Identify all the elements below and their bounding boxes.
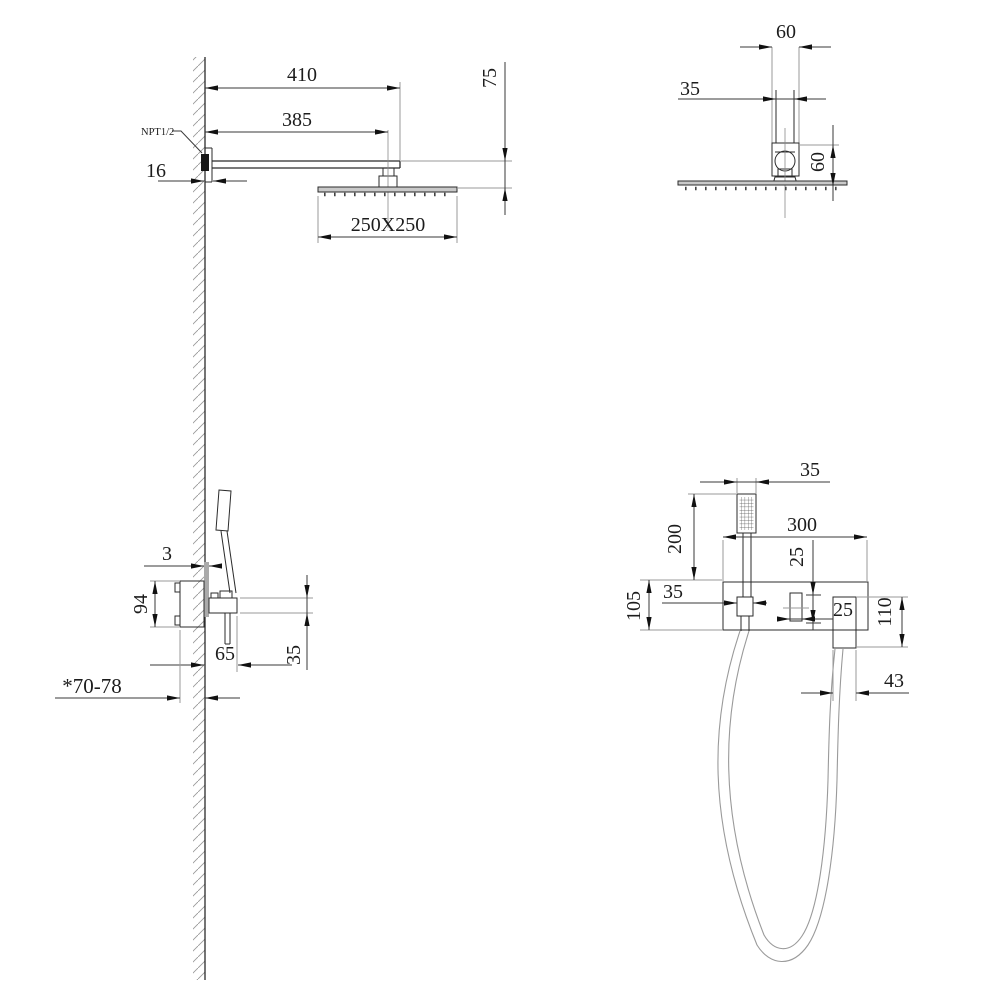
wall-section (193, 57, 209, 980)
npt-fitting (201, 154, 209, 171)
dim-handle-top-offset: 25 (786, 547, 808, 567)
dim-drop-height: 75 (479, 68, 501, 88)
dim-body-height: 94 (130, 594, 152, 614)
handshower-holder-front (737, 597, 753, 616)
dim-head-size: 250X250 (351, 214, 425, 236)
dim-outlet-width: 43 (884, 670, 904, 692)
mixer-handle-front (790, 593, 802, 621)
rain-head-plate-end (678, 181, 847, 185)
dim-arm-to-center: 385 (282, 109, 312, 131)
dim-handle-width: 25 (833, 599, 853, 621)
mixer-valve-front-view: 35 200 300 25 105 35 25 110 (623, 459, 909, 962)
mixer-valve-side-view: 3 94 65 35 *70-78 (55, 490, 313, 703)
dim-plate-width: 300 (787, 514, 817, 536)
dim-rough-in-depth: *70-78 (62, 674, 122, 698)
valve-wall-plate (204, 562, 209, 617)
valve-trim-side (209, 598, 237, 613)
dim-handshower-width: 35 (800, 459, 820, 481)
dim-bracket-height: 60 (807, 152, 829, 172)
dim-wall-offset: 16 (146, 160, 166, 182)
dim-trim-depth: 65 (215, 643, 235, 665)
handshower-head-side (216, 490, 231, 531)
rain-shower-end-view: 60 35 60 (678, 21, 847, 218)
dim-plate-thickness: 3 (162, 543, 172, 565)
head-connector (383, 168, 394, 176)
dim-plate-height: 105 (623, 591, 645, 621)
dim-bracket-width: 60 (776, 21, 796, 43)
rain-head-plate (318, 187, 457, 192)
dim-outlet-height: 110 (874, 597, 896, 626)
dim-arm-length: 410 (287, 64, 317, 86)
dim-holder-width: 35 (663, 581, 683, 603)
dim-arm-width: 35 (680, 78, 700, 100)
drawing-canvas: 410 385 75 NPT1/2 16 250X250 (0, 0, 1000, 1000)
dim-handshower-height: 200 (664, 524, 686, 554)
thread-label: NPT1/2 (141, 127, 174, 138)
wall-hatching (193, 57, 205, 980)
handshower-spray-face (740, 497, 754, 530)
shower-system-technical-drawing: 410 385 75 NPT1/2 16 250X250 (0, 0, 1000, 1000)
dim-trim-height: 35 (283, 645, 305, 665)
